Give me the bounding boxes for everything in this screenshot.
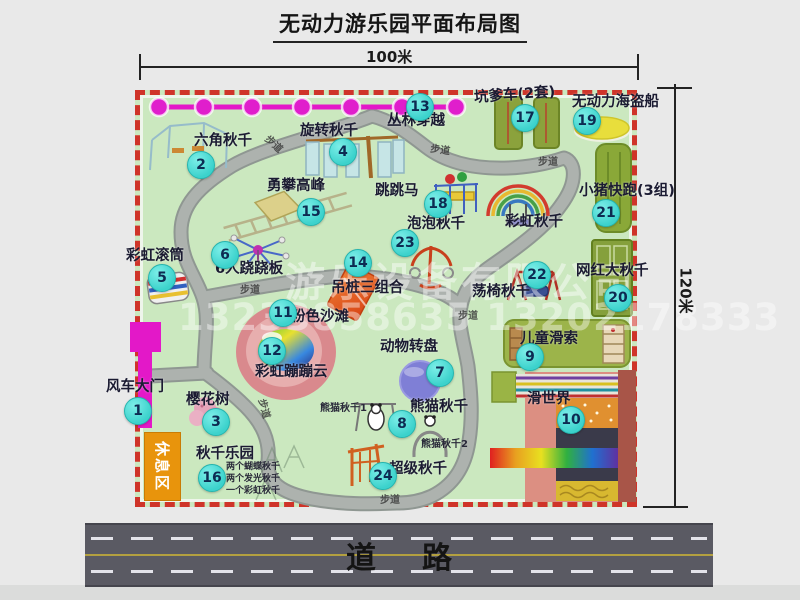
marker-slide-world: 10 bbox=[557, 406, 585, 434]
marker-six-seesaw: 6 bbox=[211, 241, 239, 269]
marker-windmill-gate: 1 bbox=[124, 397, 152, 425]
note-panda-swing-1: 熊猫秋千1 bbox=[320, 404, 367, 414]
label-chair-swing: 荡椅秋千 bbox=[472, 285, 530, 300]
marker-super-swing: 24 bbox=[369, 462, 397, 490]
label-rainbow-roller: 彩虹滚筒 bbox=[126, 249, 184, 264]
right-dimension-tick-top bbox=[657, 87, 692, 89]
marker-animal-carousel: 7 bbox=[426, 359, 454, 387]
marker-peak-climbing: 15 bbox=[297, 198, 325, 226]
label-big-net-swing: 网红大秋千 bbox=[576, 264, 649, 279]
path-label-6: 步道 bbox=[458, 312, 478, 322]
marker-chair-swing: 22 bbox=[523, 261, 551, 289]
label-rainbow-cloud: 彩虹蹦蹦云 bbox=[255, 365, 328, 380]
rest-area: 休息区 bbox=[144, 432, 181, 501]
marker-kids-zipline: 9 bbox=[516, 343, 544, 371]
marker-bubble-swing: 23 bbox=[391, 229, 419, 257]
note-swing-park-note-1: 两个蝴蝶秋千 bbox=[226, 463, 280, 472]
label-cherry-tree: 樱花树 bbox=[186, 393, 230, 408]
label-windmill-gate: 风车大门 bbox=[106, 380, 164, 395]
marker-cherry-tree: 3 bbox=[202, 408, 230, 436]
page-title: 无动力游乐园平面布局图 bbox=[0, 8, 800, 43]
right-dimension-tick-bottom bbox=[643, 506, 688, 508]
marker-pink-beach: 11 bbox=[269, 299, 297, 327]
marker-jumping-horse: 18 bbox=[424, 190, 452, 218]
note-swing-park-note-2: 两个发光秋千 bbox=[226, 475, 280, 484]
marker-rainbow-roller: 5 bbox=[148, 264, 176, 292]
label-slide-world: 滑世界 bbox=[527, 392, 571, 407]
top-dimension-tick-left bbox=[139, 54, 141, 80]
road-shoulder bbox=[0, 585, 800, 600]
label-peak-climbing: 勇攀高峰 bbox=[267, 179, 325, 194]
park-plan-page: 无动力游乐园平面布局图 100米 120米 bbox=[0, 0, 800, 600]
top-dimension-tick-right bbox=[637, 54, 639, 80]
marker-hexagon-swing: 2 bbox=[187, 151, 215, 179]
road-label: 道路 bbox=[85, 525, 713, 585]
height-dimension-label: 120米 bbox=[676, 267, 697, 313]
marker-hanging-post-combo: 14 bbox=[344, 249, 372, 277]
label-swing-park: 秋千乐园 bbox=[196, 447, 254, 462]
note-panda-swing-2: 熊猫秋千2 bbox=[421, 440, 468, 450]
marker-rotating-swing: 4 bbox=[329, 138, 357, 166]
marker-rainbow-cloud: 12 bbox=[258, 337, 286, 365]
label-super-swing: 超级秋千 bbox=[389, 462, 447, 477]
label-rotating-swing: 旋转秋千 bbox=[300, 124, 358, 139]
marker-jungle-crossing: 13 bbox=[406, 93, 434, 121]
label-animal-carousel: 动物转盘 bbox=[380, 340, 438, 355]
width-dimension-label: 100米 bbox=[366, 46, 412, 67]
label-rainbow-swing: 彩虹秋千 bbox=[505, 215, 563, 230]
marker-swing-park: 16 bbox=[198, 464, 226, 492]
path-label-3: 步道 bbox=[538, 158, 558, 168]
marker-pirate-ship: 19 bbox=[573, 107, 601, 135]
marker-panda-swing: 8 bbox=[388, 410, 416, 438]
label-hexagon-swing: 六角秋千 bbox=[194, 134, 252, 149]
label-pink-beach: 粉色沙滩 bbox=[291, 310, 349, 325]
path-label-4: 步道 bbox=[240, 286, 260, 296]
page-title-text: 无动力游乐园平面布局图 bbox=[273, 8, 527, 43]
label-panda-swing: 熊猫秋千 bbox=[410, 400, 468, 415]
rest-area-label: 休息区 bbox=[152, 441, 173, 492]
marker-pit-cart: 17 bbox=[511, 104, 539, 132]
path-label-7: 步道 bbox=[380, 496, 400, 506]
marker-big-net-swing: 20 bbox=[604, 284, 632, 312]
marker-piggy-run: 21 bbox=[592, 199, 620, 227]
label-bubble-swing: 泡泡秋千 bbox=[407, 217, 465, 232]
note-swing-park-note-3: 一个彩虹秋千 bbox=[226, 487, 280, 496]
label-jumping-horse: 跳跳马 bbox=[375, 184, 419, 199]
label-hanging-post-combo: 吊桩三组合 bbox=[331, 281, 404, 296]
label-piggy-run: 小猪快跑(3组) bbox=[579, 184, 675, 199]
road: 道路 bbox=[85, 523, 713, 587]
